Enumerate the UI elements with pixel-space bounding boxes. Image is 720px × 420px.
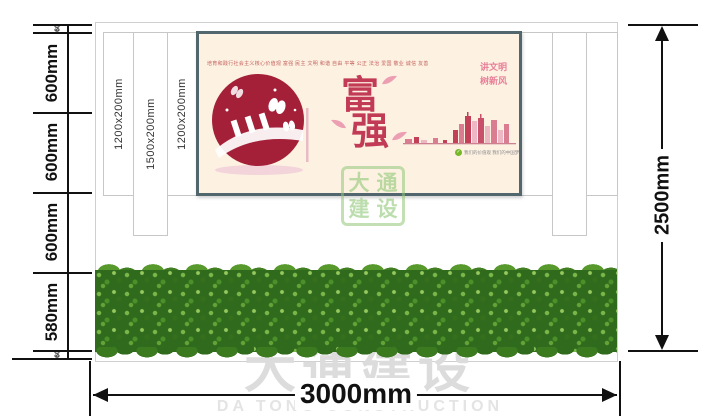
- logo-char: 大: [349, 173, 370, 194]
- slat-right-3: [586, 32, 618, 196]
- left-dim-tick: [33, 272, 92, 274]
- dim-label-600-3: 600mm: [42, 203, 62, 262]
- left-dim-tick: [33, 112, 92, 114]
- left-dim-tick: [33, 24, 92, 26]
- leaf-decoration-icon: [381, 74, 399, 86]
- right-dim-line-bottom: [661, 242, 663, 337]
- poster-main-char-bottom: 强: [351, 112, 389, 150]
- slat-right-2: [552, 32, 587, 236]
- right-dim-line-top: [661, 39, 663, 149]
- poster-slogan-line1: 讲文明: [480, 61, 507, 75]
- dim-label-600-2: 600mm: [42, 123, 62, 182]
- arrow-right-icon: [602, 388, 617, 402]
- dim-label-60-bottom: 60: [55, 350, 62, 358]
- poster-caption: ✓ 我们的价值观 我们的中国梦: [455, 149, 519, 156]
- dim-label-60-top: 60: [55, 24, 62, 32]
- slat-left-2: 1500x200mm: [133, 32, 168, 236]
- logo-char: 设: [377, 199, 398, 220]
- dim-label-600-1: 600mm: [42, 44, 62, 103]
- slat-left-3-label: 1200x200mm: [176, 78, 188, 150]
- bottom-dim-ext-right: [619, 361, 621, 416]
- dim-label-3000: 3000mm: [295, 378, 417, 410]
- left-dim-tick: [33, 192, 92, 194]
- bottom-dim-ext-left: [89, 361, 91, 416]
- hedge-image: [95, 270, 617, 352]
- arrow-down-icon: [655, 335, 669, 350]
- slat-left-1-label: 1200x200mm: [113, 78, 125, 150]
- slat-left-1: 1200x200mm: [103, 32, 134, 196]
- dim-label-580: 580mm: [42, 283, 62, 342]
- design-drawing-canvas: 1200x200mm 1500x200mm 1200x200mm 培育和践行社会…: [0, 0, 720, 420]
- left-dim-tick: [33, 32, 92, 34]
- dim-label-2500: 2500mm: [652, 155, 675, 235]
- green-check-icon: ✓: [455, 149, 462, 156]
- datong-green-logo-watermark: 大 通 建 设: [341, 166, 405, 226]
- slat-right-1: [520, 32, 553, 196]
- city-skyline-graphic: [403, 112, 516, 146]
- slat-left-3: 1200x200mm: [167, 32, 197, 196]
- poster-slogan-line2: 树新风: [480, 75, 507, 89]
- poster-header-text: 培育和践行社会主义核心价值观 富强 民主 文明 和谐 自由 平等 公正 法治 爱…: [207, 60, 437, 67]
- poster-caption-text: 我们的价值观 我们的中国梦: [464, 150, 519, 156]
- left-dim-tick: [33, 350, 92, 352]
- logo-char: 通: [377, 173, 398, 194]
- leaf-decoration-icon: [329, 118, 347, 130]
- right-dim-ext-bottom: [628, 350, 698, 352]
- hedge-foliage-bottom: [95, 347, 617, 362]
- papercut-circle-graphic: [207, 70, 315, 178]
- slat-left-2-label: 1500x200mm: [145, 98, 157, 170]
- left-dim-tick: [12, 358, 92, 360]
- arrow-left-icon: [93, 388, 108, 402]
- poster-slogan: 讲文明 树新风: [480, 61, 507, 88]
- logo-char: 建: [349, 199, 370, 220]
